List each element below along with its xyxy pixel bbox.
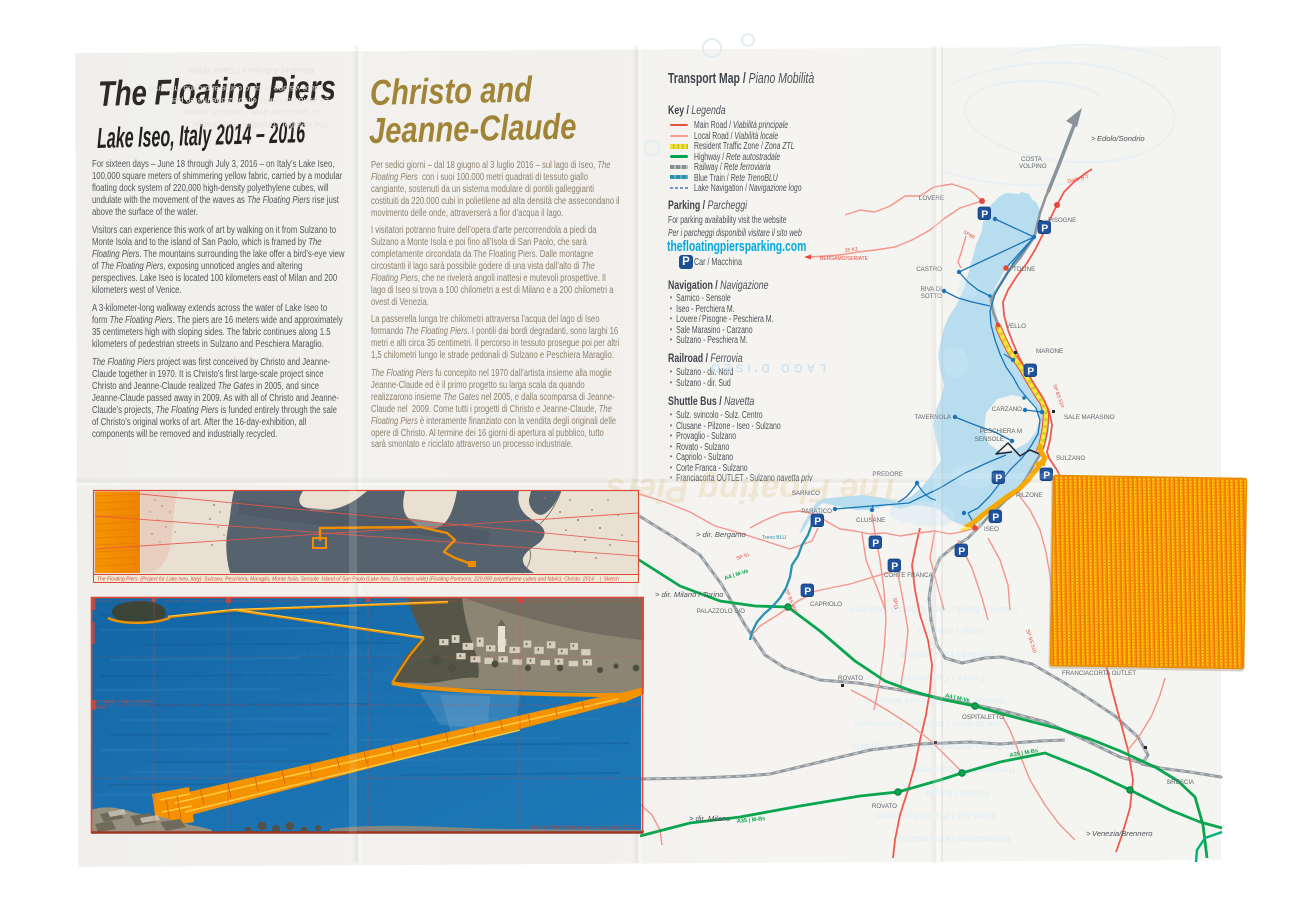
svg-text:80 meters + Italy, 2 Anchors: 80 meters + Italy, 2 Anchors <box>95 699 153 704</box>
svg-text:The Floating Piers (Project f: The Floating Piers (Project for Lake Ise… <box>97 577 619 583</box>
svg-text:ATTRAVERSERA A FIOR D'ACQUA: ATTRAVERSERA A FIOR D'ACQUA <box>271 648 400 657</box>
svg-text:IN POLIETILENE AD ALTA DENSITA: IN POLIETILENE AD ALTA DENSITA <box>278 692 410 701</box>
svg-text:Piers: Piers <box>95 705 106 710</box>
svg-text:DI PONTILI GALLEGGIANTI COSTIT: DI PONTILI GALLEGGIANTI COSTITUITI DA CU… <box>267 714 450 723</box>
svg-text:SOSTENUTI DA UN SISTEMA MODULA: SOSTENUTI DA UN SISTEMA MODULARE <box>263 736 420 745</box>
svg-text:Christo: The Floating Piers, L: Christo: The Floating Piers, Lake Iseo 2… <box>530 825 636 831</box>
